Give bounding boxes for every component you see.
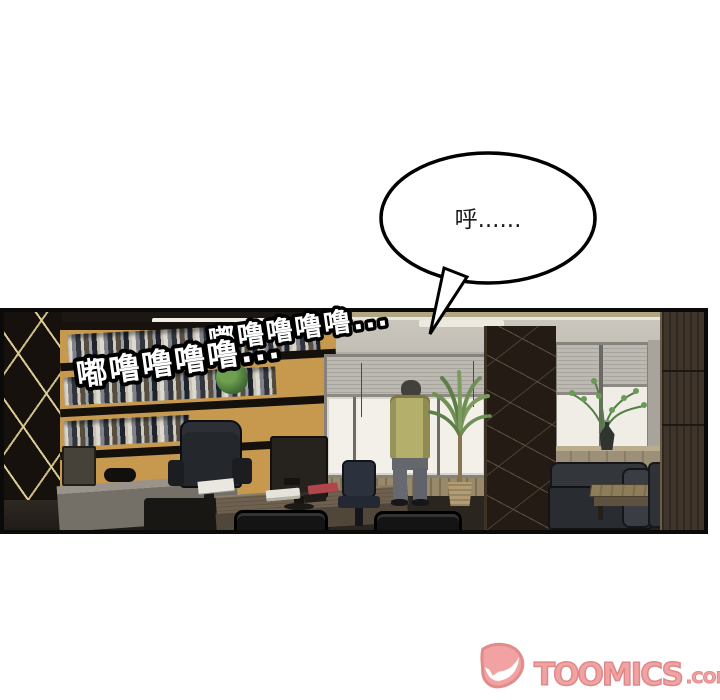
- column: [484, 326, 556, 530]
- chair-armrest: [232, 458, 252, 484]
- speaker: [104, 468, 136, 482]
- man-shoe: [391, 499, 408, 506]
- right-cabinet: [660, 312, 704, 530]
- toomics-d-icon: [474, 640, 530, 690]
- sfx-rumble-2: 嘟噜噜噜噜...: [70, 338, 320, 406]
- blind-cord: [361, 363, 362, 417]
- sfx-text-2: 嘟噜噜噜噜...: [74, 330, 283, 394]
- man-leg: [393, 468, 407, 500]
- left-deco-wall: [4, 312, 62, 530]
- speech-bubble-text: 呼......: [455, 207, 522, 233]
- cabinet-seam: [662, 370, 706, 372]
- monitor-base: [284, 503, 314, 510]
- monitor-port: [284, 478, 300, 485]
- credenza-monitor: [62, 446, 96, 486]
- foreground-chair-back: [234, 510, 328, 534]
- man-leg: [413, 468, 427, 500]
- foreground-chair-back: [374, 511, 462, 534]
- toomics-domain-text: .COM: [686, 668, 720, 687]
- palm-leaves: [428, 370, 492, 444]
- cabinet-seam: [662, 424, 706, 426]
- speech-bubble-tail: [430, 268, 467, 334]
- man-jacket: [390, 395, 430, 459]
- palm-plant: [428, 370, 492, 508]
- side-chair-back: [342, 460, 376, 498]
- comic-page: 嘟噜噜噜噜... 嘟噜噜噜噜... 呼...... TOOMICS .COM: [0, 0, 720, 700]
- palm-trunk: [458, 434, 462, 484]
- speech-bubble: 呼......: [366, 144, 616, 344]
- chair-armrest: [168, 460, 184, 486]
- side-chair-seat: [338, 496, 380, 508]
- toomics-watermark: TOOMICS .COM: [474, 640, 720, 690]
- coffee-table-leg: [598, 506, 603, 520]
- side-chair-post: [355, 508, 363, 526]
- palm-pot: [446, 482, 474, 506]
- man-shoe: [412, 499, 429, 506]
- toomics-brand-text: TOOMICS: [534, 661, 682, 690]
